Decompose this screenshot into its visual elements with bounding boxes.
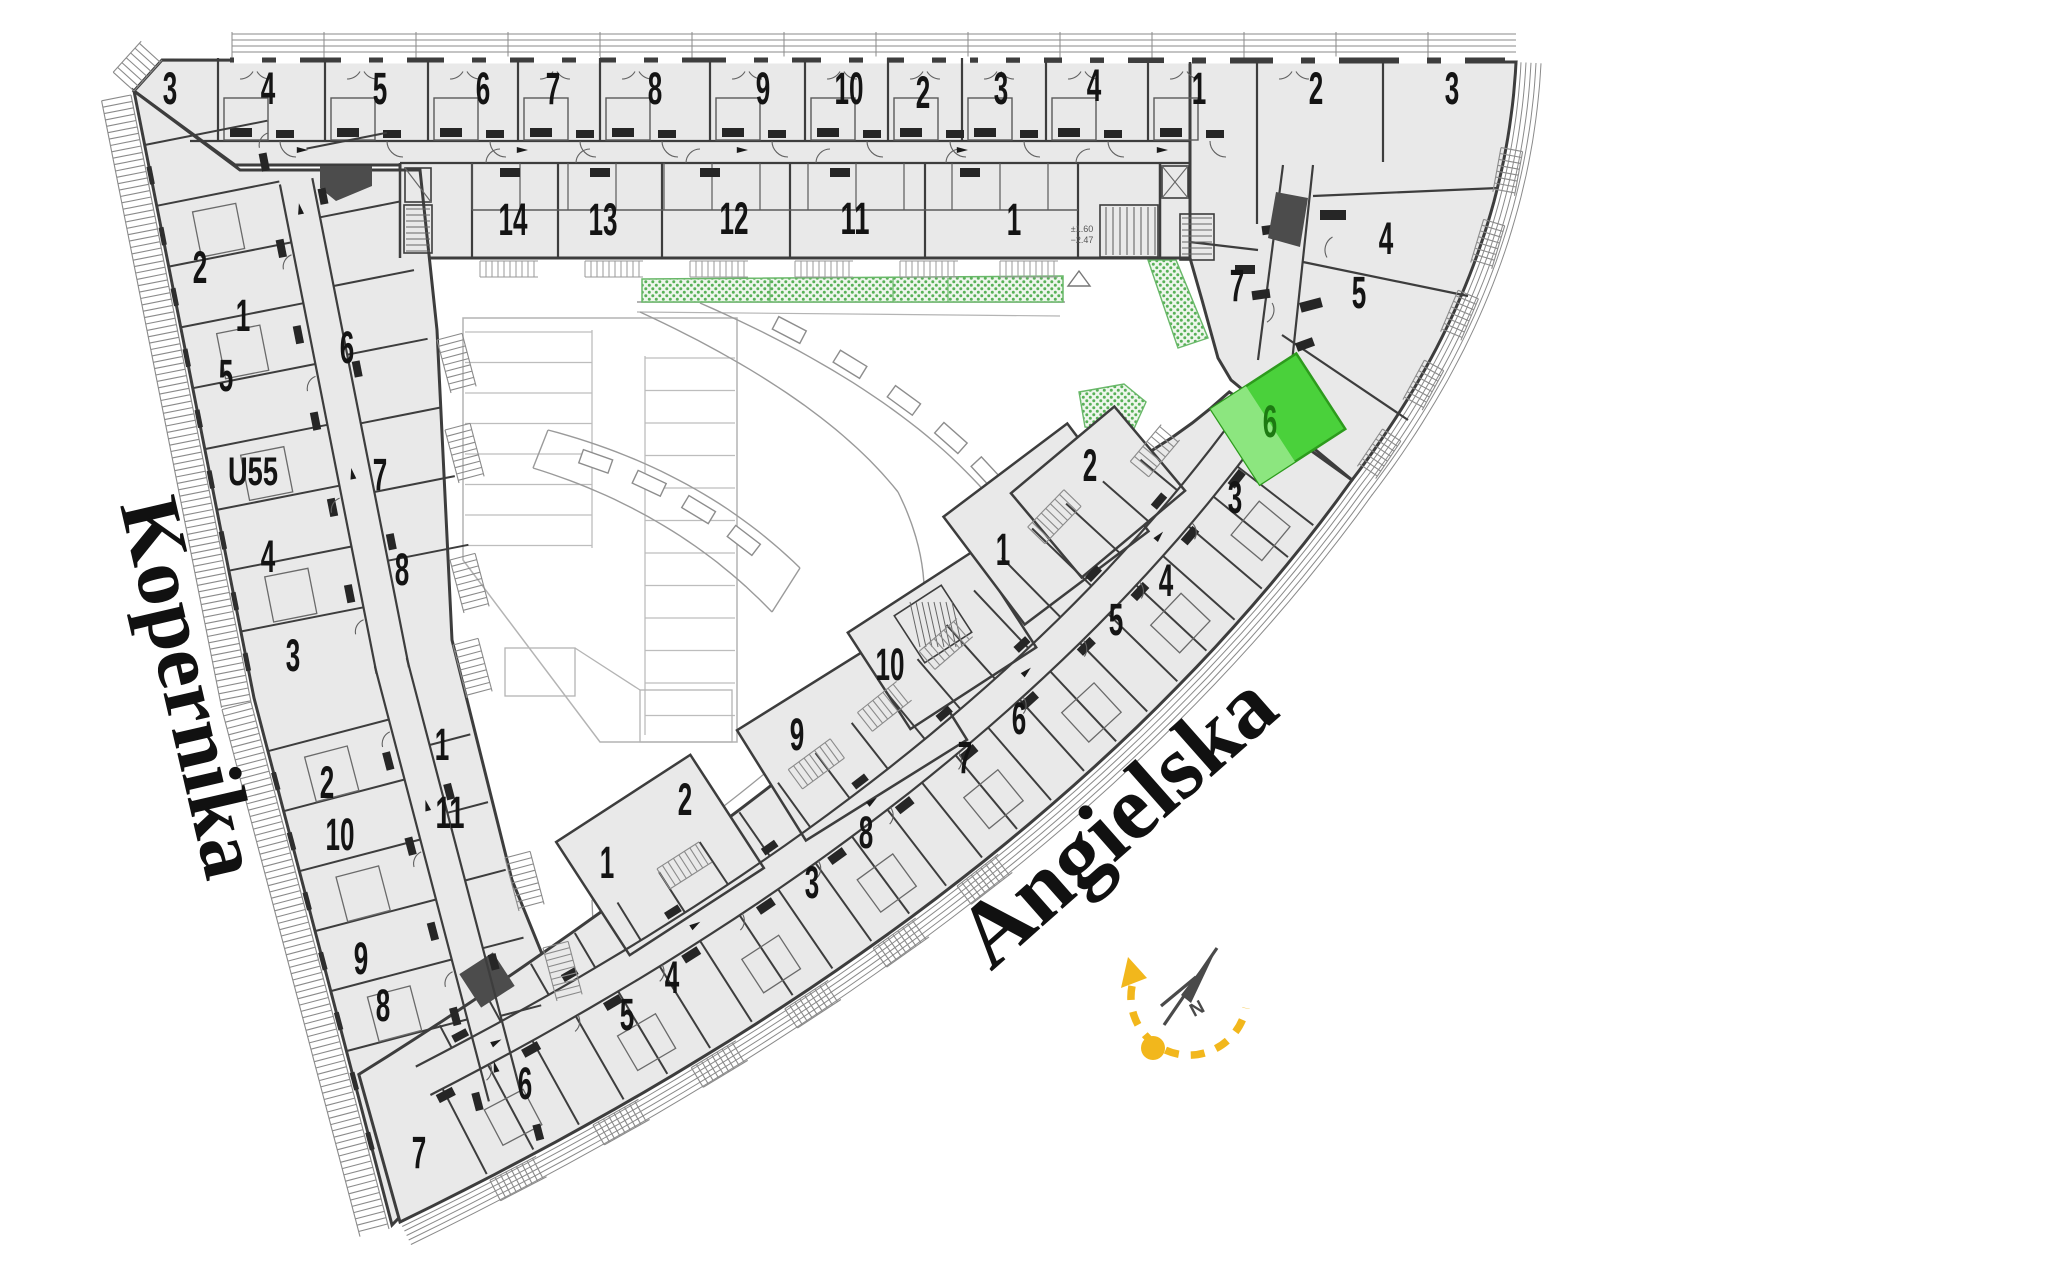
svg-text:2: 2: [1309, 63, 1324, 114]
svg-text:5: 5: [620, 989, 635, 1040]
svg-text:9: 9: [756, 63, 771, 114]
svg-text:9: 9: [354, 933, 369, 984]
svg-text:6: 6: [1012, 693, 1027, 744]
svg-text:5: 5: [219, 350, 234, 401]
svg-text:4: 4: [1159, 555, 1174, 606]
svg-text:11: 11: [841, 193, 870, 244]
svg-text:3: 3: [1228, 472, 1243, 523]
svg-text:4: 4: [261, 531, 276, 582]
svg-text:1: 1: [236, 290, 251, 341]
svg-text:14: 14: [499, 194, 528, 245]
svg-text:7: 7: [546, 63, 561, 114]
svg-text:1: 1: [996, 524, 1011, 575]
svg-text:4: 4: [1087, 60, 1102, 111]
svg-text:9: 9: [790, 709, 805, 760]
svg-text:2: 2: [916, 67, 931, 118]
svg-text:2: 2: [678, 774, 693, 825]
svg-text:12: 12: [720, 193, 749, 244]
svg-text:6: 6: [340, 322, 355, 373]
svg-text:7: 7: [412, 1127, 427, 1178]
svg-text:5: 5: [1109, 594, 1124, 645]
svg-text:U55: U55: [228, 450, 278, 494]
svg-text:8: 8: [376, 980, 391, 1031]
svg-text:11: 11: [436, 787, 465, 838]
svg-text:6: 6: [476, 63, 491, 114]
svg-text:1: 1: [600, 837, 615, 888]
svg-text:8: 8: [859, 807, 874, 858]
svg-text:1: 1: [1007, 194, 1022, 245]
svg-text:10: 10: [876, 639, 905, 690]
svg-text:2: 2: [193, 242, 208, 293]
svg-text:6: 6: [1263, 396, 1278, 447]
svg-text:8: 8: [395, 544, 410, 595]
svg-text:1: 1: [435, 719, 450, 770]
svg-text:3: 3: [163, 63, 178, 114]
svg-text:1: 1: [1192, 63, 1207, 114]
svg-text:4: 4: [1379, 213, 1394, 264]
svg-text:10: 10: [326, 809, 355, 860]
svg-text:8: 8: [648, 63, 663, 114]
svg-text:5: 5: [1352, 267, 1367, 318]
svg-text:7: 7: [373, 449, 388, 500]
svg-text:3: 3: [994, 63, 1009, 114]
svg-text:3: 3: [286, 630, 301, 681]
svg-text:13: 13: [589, 194, 618, 245]
svg-text:7: 7: [1230, 260, 1245, 311]
svg-text:5: 5: [373, 63, 388, 114]
svg-text:10: 10: [835, 63, 864, 114]
svg-text:4: 4: [665, 952, 680, 1003]
svg-text:−2.47: −2.47: [1071, 235, 1094, 245]
svg-text:3: 3: [1445, 63, 1460, 114]
svg-text:3: 3: [805, 857, 820, 908]
svg-text:±1.60: ±1.60: [1071, 224, 1093, 234]
svg-text:2: 2: [1083, 440, 1098, 491]
svg-text:6: 6: [518, 1058, 533, 1109]
svg-text:7: 7: [958, 732, 973, 783]
svg-text:4: 4: [261, 63, 276, 114]
svg-text:2: 2: [320, 757, 335, 808]
